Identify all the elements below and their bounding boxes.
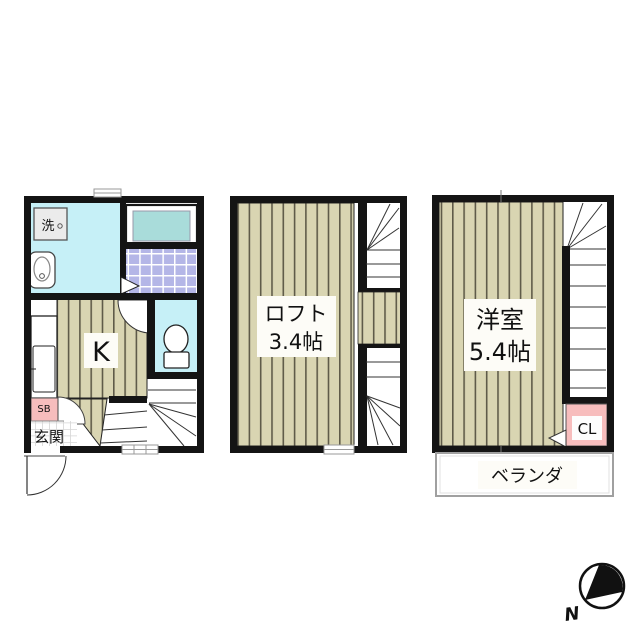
unit-first-floor: 洗 — [24, 189, 204, 495]
bedroom-name-label: 洋室 — [476, 306, 524, 334]
front-door-arc — [24, 456, 66, 495]
loft-area-label: 3.4帖 — [269, 330, 323, 354]
stair-wall — [109, 396, 147, 403]
loft-stair-wall-top — [358, 203, 367, 288]
bathtub-wall — [124, 242, 204, 249]
stair-landing — [358, 292, 401, 344]
kitchen-label: K — [92, 337, 111, 368]
washer-label: 洗 — [41, 219, 54, 234]
closet-label: CL — [578, 420, 597, 438]
closet-top-wall — [562, 397, 607, 404]
loft-stair-wall-bottom — [358, 348, 367, 446]
landing-edge-bottom — [358, 344, 401, 348]
compass-north-label: N — [563, 603, 581, 626]
washing-machine-icon: 洗 — [34, 208, 67, 240]
floorplan-canvas: 洗 — [0, 0, 640, 640]
veranda-label: ベランダ — [491, 466, 563, 487]
loft-window — [324, 445, 354, 454]
unit-second-floor: CL 洋室 5.4帖 ベランダ — [432, 190, 614, 496]
shoe-box-label: SB — [37, 404, 50, 415]
entrance-label: 玄関 — [34, 428, 64, 446]
bedroom-stair-wall — [562, 246, 570, 404]
unit-loft: ロフト 3.4帖 — [230, 196, 407, 454]
sink-icon — [29, 252, 55, 288]
loft-name-label: ロフト — [265, 302, 328, 326]
toilet-icon — [164, 325, 189, 368]
bedroom-area-label: 5.4帖 — [469, 338, 531, 366]
landing-edge-top — [358, 288, 401, 292]
bathtub-icon — [126, 205, 197, 247]
veranda: ベランダ — [436, 453, 613, 496]
compass: N — [563, 564, 624, 626]
